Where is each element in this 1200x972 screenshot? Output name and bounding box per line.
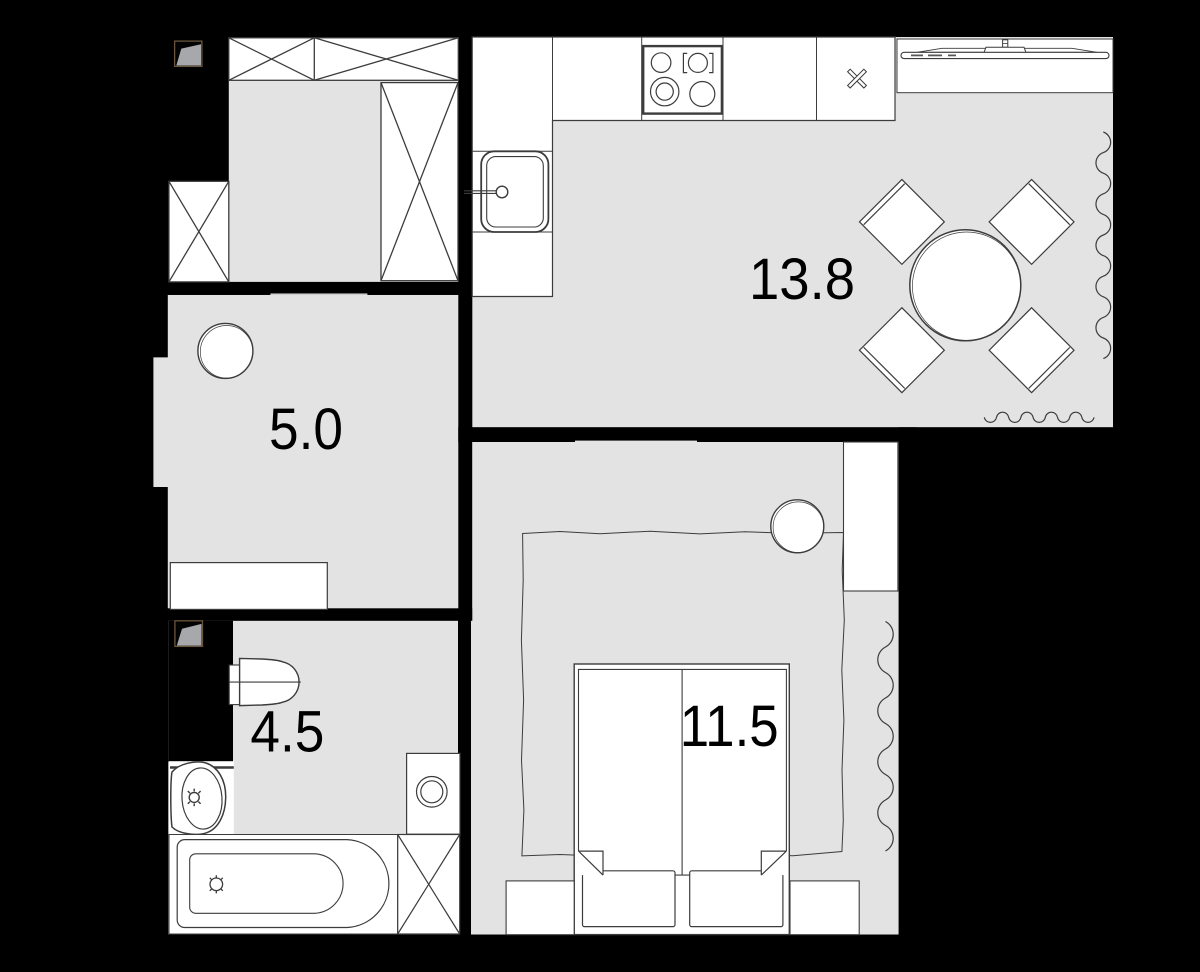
svg-text:5.0: 5.0 [269,397,343,462]
svg-text:11.5: 11.5 [680,694,779,759]
svg-text:13.8: 13.8 [749,247,855,312]
svg-text:4.5: 4.5 [250,700,324,765]
